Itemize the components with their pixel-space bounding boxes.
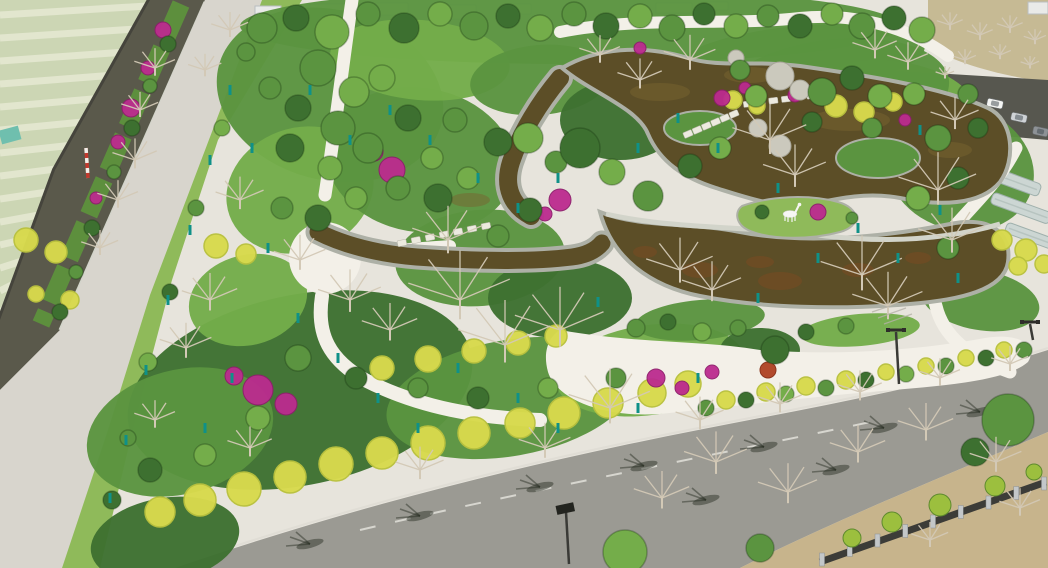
algae-patch xyxy=(758,272,802,290)
tree-canopy xyxy=(214,120,230,136)
shrub-ball xyxy=(1026,464,1042,480)
shrub-ball xyxy=(843,529,861,547)
tree-stake xyxy=(267,243,270,253)
bougainvillea xyxy=(225,367,243,385)
bougainvillea xyxy=(141,61,155,75)
tree-canopy xyxy=(162,284,178,300)
tree-canopy xyxy=(746,534,774,562)
yellow-hedge xyxy=(958,350,974,366)
tree-stake xyxy=(167,295,170,305)
tree-canopy xyxy=(356,2,380,26)
tree-canopy xyxy=(237,43,255,61)
tree-canopy xyxy=(593,13,619,39)
tree-stake xyxy=(939,205,942,215)
yellow-hedge xyxy=(548,397,580,429)
bougainvillea xyxy=(705,365,719,379)
tree-canopy xyxy=(460,12,488,40)
tree-canopy xyxy=(982,394,1034,446)
yellow-hedge xyxy=(204,234,228,258)
tree-stake xyxy=(231,373,234,383)
tree-canopy xyxy=(283,5,309,31)
bougainvillea xyxy=(810,204,826,220)
fence-post xyxy=(1014,487,1019,500)
tree-canopy xyxy=(386,176,410,200)
boulder xyxy=(790,80,810,100)
tree-canopy xyxy=(318,156,342,180)
tree-stake xyxy=(557,173,560,183)
tree-canopy xyxy=(937,237,959,259)
tree-stake xyxy=(389,105,392,115)
tree-canopy xyxy=(903,83,925,105)
tree-canopy xyxy=(846,212,858,224)
stepping-stone xyxy=(768,97,778,104)
lamp-head xyxy=(1020,320,1024,324)
tree-stake xyxy=(251,143,254,153)
shrub-ball xyxy=(929,494,951,516)
tree-canopy xyxy=(527,15,553,41)
yellow-hedge xyxy=(366,437,398,469)
tree-stake xyxy=(637,143,640,153)
tree-canopy xyxy=(339,77,369,107)
tree-stake xyxy=(109,493,112,503)
tree-canopy xyxy=(730,320,746,336)
tree-canopy xyxy=(138,458,162,482)
tree-canopy xyxy=(560,128,600,168)
yellow-hedge xyxy=(1009,257,1027,275)
tree-canopy xyxy=(659,15,685,41)
tree-canopy xyxy=(882,6,906,30)
tree-canopy xyxy=(961,438,989,466)
tree-canopy xyxy=(518,198,542,222)
lamp-head xyxy=(886,328,890,332)
tree-canopy xyxy=(660,314,676,330)
yellow-hedge xyxy=(14,228,38,252)
tree-stake xyxy=(817,253,820,263)
tree-canopy xyxy=(285,95,311,121)
tree-canopy xyxy=(389,13,419,43)
park-aerial-scene xyxy=(0,0,1048,568)
tree-stake xyxy=(919,125,922,135)
tree-canopy xyxy=(757,5,779,27)
lamp-head xyxy=(902,328,906,332)
tree-canopy xyxy=(798,324,814,340)
yellow-hedge xyxy=(145,497,175,527)
tree-canopy xyxy=(487,225,509,247)
tree-stake xyxy=(517,203,520,213)
lamp-head xyxy=(1036,320,1040,324)
tree-canopy xyxy=(958,84,978,104)
tree-canopy xyxy=(678,154,702,178)
yellow-hedge xyxy=(236,244,256,264)
tree-canopy xyxy=(276,134,304,162)
tree-canopy xyxy=(457,167,479,189)
tree-stake xyxy=(297,313,300,323)
yellow-hedge xyxy=(415,346,441,372)
bougainvillea xyxy=(122,99,140,117)
fence-post xyxy=(875,534,880,547)
tree-canopy xyxy=(761,336,789,364)
tree-canopy xyxy=(788,14,812,38)
tree-canopy xyxy=(925,125,951,151)
tree-stake xyxy=(597,297,600,307)
tree-canopy xyxy=(909,17,935,43)
tree-canopy xyxy=(467,387,489,409)
water-highlight xyxy=(450,193,490,207)
tree-canopy xyxy=(395,105,421,131)
tree-canopy xyxy=(906,186,930,210)
tree-stake xyxy=(229,85,232,95)
tree-canopy xyxy=(745,85,767,107)
yellow-hedge xyxy=(462,339,486,363)
yellow-hedge xyxy=(505,408,535,438)
bougainvillea xyxy=(714,90,730,106)
barrier-post xyxy=(86,148,88,178)
tree-canopy xyxy=(513,123,543,153)
tree-canopy xyxy=(345,367,367,389)
fence-post xyxy=(820,553,825,566)
tree-canopy xyxy=(160,36,176,52)
yellow-hedge xyxy=(717,391,735,409)
shrub-ball xyxy=(882,512,902,532)
tree-canopy xyxy=(271,197,293,219)
tree-canopy xyxy=(693,3,715,25)
tree-canopy xyxy=(730,60,750,80)
bougainvillea xyxy=(549,189,571,211)
tree-stake xyxy=(349,135,352,145)
grass-peninsula xyxy=(737,197,855,238)
yellow-hedge xyxy=(837,371,855,389)
tree-canopy xyxy=(898,366,914,382)
tree-canopy xyxy=(709,137,731,159)
fence-post xyxy=(1042,477,1047,490)
tree-stake xyxy=(777,183,780,193)
tree-canopy xyxy=(408,378,428,398)
building xyxy=(1028,2,1048,14)
yellow-hedge xyxy=(28,286,44,302)
tree-stake xyxy=(417,423,420,433)
tree-canopy xyxy=(421,147,443,169)
tree-canopy xyxy=(143,79,157,93)
tree-stake xyxy=(897,253,900,263)
tree-stake xyxy=(677,113,680,123)
algae-patch xyxy=(746,256,774,268)
aerial-park-photo: Aerial drone view of a newly landscaped … xyxy=(0,0,1048,568)
tree-canopy xyxy=(369,65,395,91)
yellow-hedge xyxy=(227,472,261,506)
bougainvillea xyxy=(111,135,125,149)
tree-canopy xyxy=(139,353,157,371)
tree-stake xyxy=(457,363,460,373)
yellow-hedge xyxy=(45,241,67,263)
tree-canopy xyxy=(285,345,311,371)
tree-stake xyxy=(697,373,700,383)
tree-canopy xyxy=(107,165,121,179)
tree-stake xyxy=(125,435,128,445)
tree-canopy xyxy=(103,491,121,509)
tree-stake xyxy=(757,293,760,303)
tree-stake xyxy=(204,423,207,433)
bougainvillea xyxy=(634,42,646,54)
bougainvillea xyxy=(275,393,297,415)
yellow-hedge xyxy=(878,364,894,380)
tree-canopy xyxy=(868,84,892,108)
yellow-hedge xyxy=(411,426,445,460)
algae-patch xyxy=(905,252,931,264)
boulder xyxy=(769,135,791,157)
yellow-hedge xyxy=(184,484,216,516)
tree-stake xyxy=(377,393,380,403)
tree-canopy xyxy=(821,3,843,25)
yellow-hedge xyxy=(370,356,394,380)
tree-canopy xyxy=(194,444,216,466)
tree-canopy xyxy=(724,14,748,38)
tree-canopy xyxy=(428,2,452,26)
boulder xyxy=(766,62,794,90)
yellow-hedge xyxy=(274,461,306,493)
tree-stake xyxy=(517,393,520,403)
tree-stake xyxy=(145,365,148,375)
tree-canopy xyxy=(562,2,586,26)
yellow-hedge xyxy=(1035,255,1048,273)
tree-canopy xyxy=(633,181,663,211)
yellow-hedge xyxy=(458,417,490,449)
tree-canopy xyxy=(247,13,277,43)
tree-canopy xyxy=(124,120,140,136)
tree-canopy xyxy=(838,318,854,334)
tree-stake xyxy=(477,173,480,183)
tree-canopy xyxy=(538,378,558,398)
tree-canopy xyxy=(120,430,136,446)
tree-stake xyxy=(189,225,192,235)
yellow-hedge xyxy=(757,383,775,401)
bougainvillea xyxy=(647,369,665,387)
tree-canopy xyxy=(353,133,383,163)
tree-stake xyxy=(557,423,560,433)
tree-canopy xyxy=(840,66,864,90)
yellow-hedge xyxy=(319,447,353,481)
pond-island xyxy=(836,138,920,178)
tree-canopy xyxy=(603,530,647,568)
yellow-hedge xyxy=(797,377,815,395)
tree-stake xyxy=(717,143,720,153)
tree-canopy xyxy=(443,108,467,132)
fence-post xyxy=(931,515,936,528)
tree-canopy xyxy=(315,15,349,49)
tree-canopy xyxy=(259,77,281,99)
deer-head xyxy=(798,203,802,207)
bougainvillea xyxy=(899,114,911,126)
tree-canopy xyxy=(755,205,769,219)
tree-canopy xyxy=(738,392,754,408)
tree-canopy xyxy=(628,4,652,28)
algae-patch xyxy=(633,246,657,258)
tree-stake xyxy=(957,273,960,283)
tree-canopy xyxy=(84,220,100,236)
tree-stake xyxy=(637,403,640,413)
tree-canopy xyxy=(808,78,836,106)
shrub-ball xyxy=(985,476,1005,496)
tree-canopy xyxy=(345,187,367,209)
tree-canopy xyxy=(627,319,645,337)
tree-canopy xyxy=(606,368,626,388)
tree-stake xyxy=(309,85,312,95)
fence-post xyxy=(903,525,908,538)
tree-stake xyxy=(857,223,860,233)
tree-stake xyxy=(209,155,212,165)
fence-post xyxy=(958,506,963,519)
tree-canopy xyxy=(305,205,331,231)
bougainvillea xyxy=(675,381,689,395)
tree-stake xyxy=(429,135,432,145)
tree-canopy xyxy=(52,304,68,320)
tree-canopy xyxy=(300,50,336,86)
tree-canopy xyxy=(802,112,822,132)
tree-canopy xyxy=(496,4,520,28)
yellow-hedge xyxy=(992,230,1012,250)
bougainvillea xyxy=(243,375,273,405)
tree-canopy xyxy=(818,380,834,396)
tree-canopy xyxy=(693,323,711,341)
tree-canopy xyxy=(188,200,204,216)
tree-canopy xyxy=(599,159,625,185)
tree-canopy xyxy=(484,128,512,156)
tree-canopy xyxy=(69,265,83,279)
tree-canopy xyxy=(862,118,882,138)
fence-post xyxy=(986,496,991,509)
tree-stake xyxy=(337,353,340,363)
tree-canopy xyxy=(849,13,875,39)
tree-canopy xyxy=(968,118,988,138)
